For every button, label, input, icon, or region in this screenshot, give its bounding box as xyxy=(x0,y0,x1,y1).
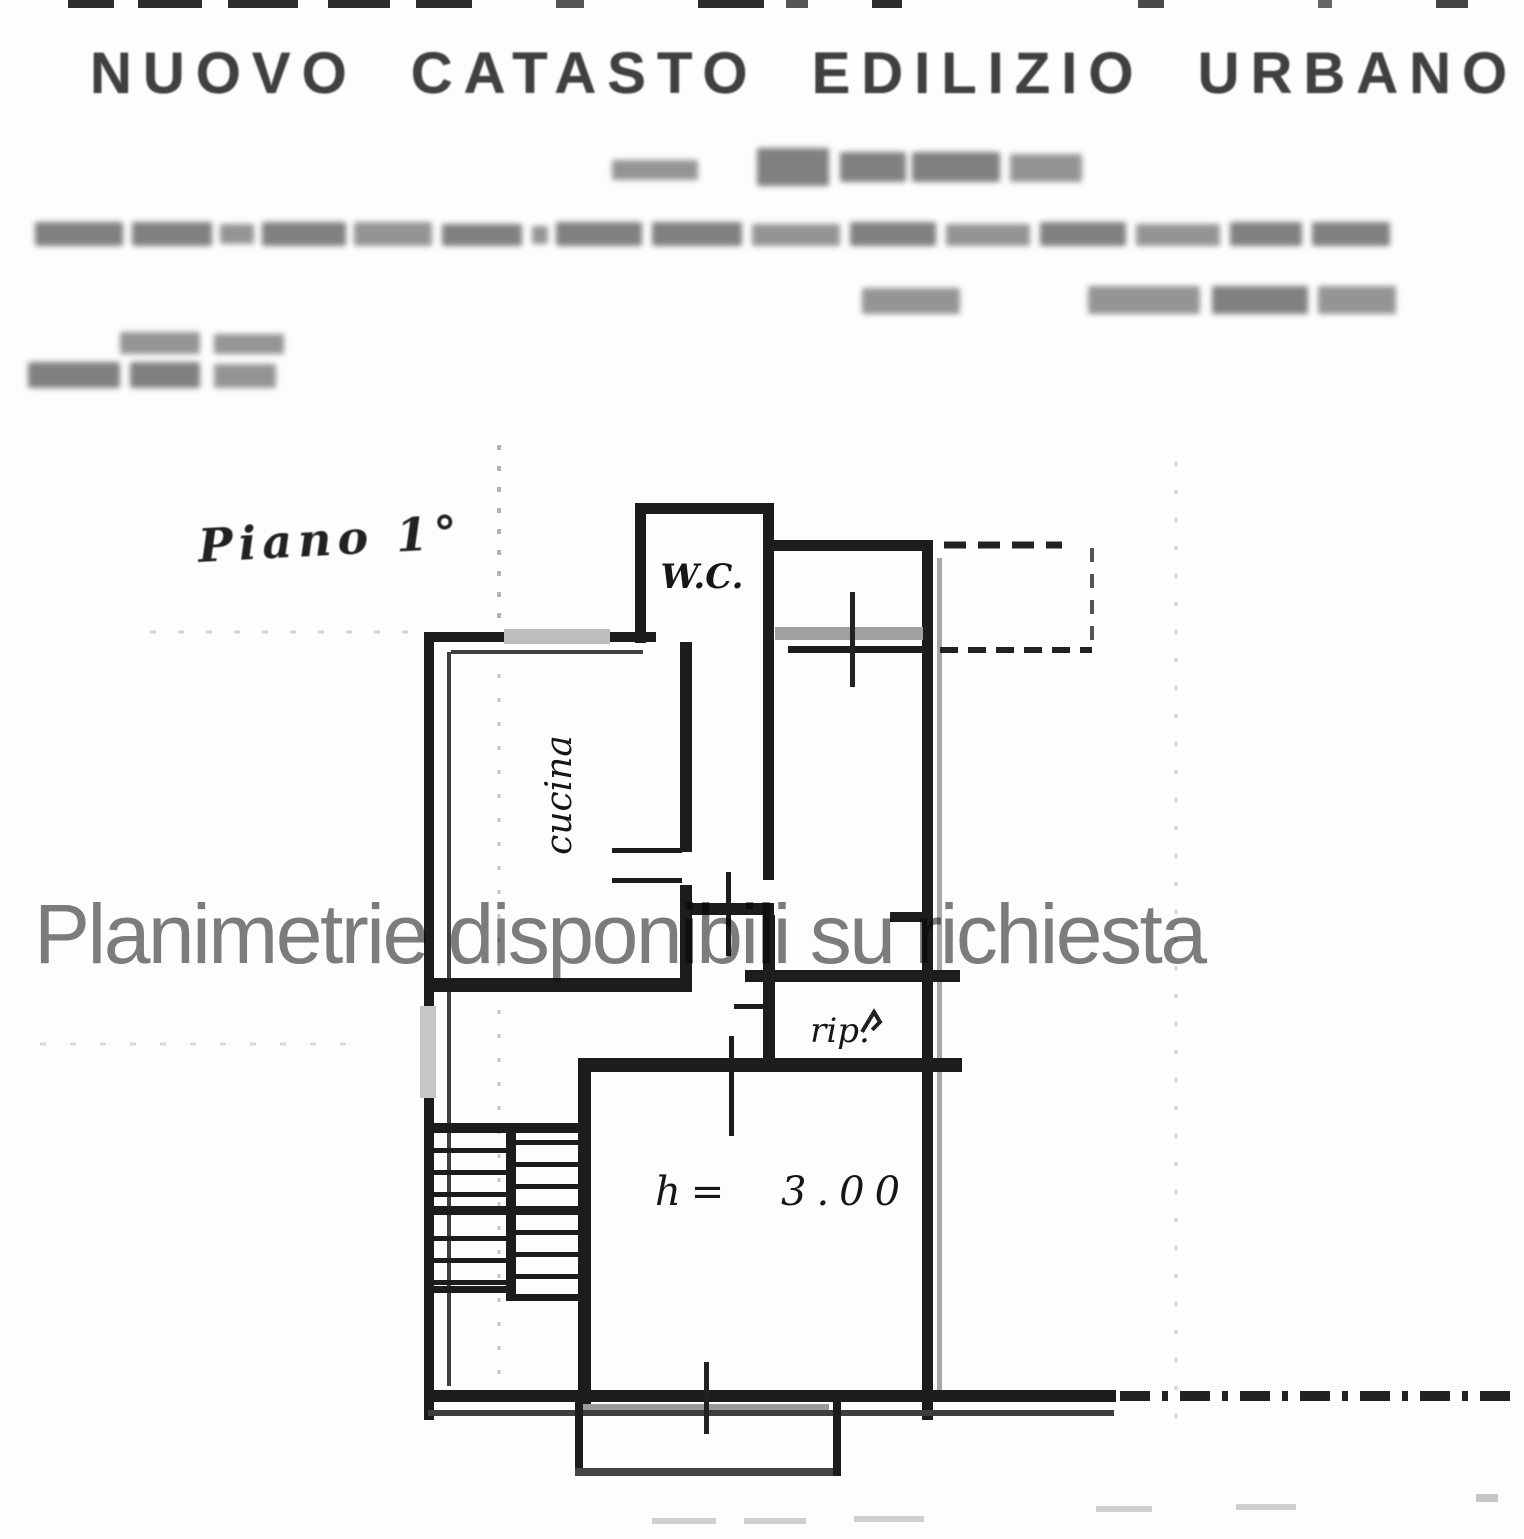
floor-plan: W.C. cucina rip. h= 3.00 xyxy=(0,0,1524,1539)
room-label-kitchen: cucina xyxy=(539,735,580,855)
room-label-storage: rip. xyxy=(810,1011,870,1051)
room-label-wc: W.C. xyxy=(660,557,743,597)
scan-artifact-bottom xyxy=(652,1494,1498,1524)
balcony-top-right xyxy=(940,545,1092,650)
room-label-height: h= 3.00 xyxy=(655,1169,910,1215)
stairs xyxy=(430,1123,588,1301)
watermark: Planimetrie disponibili su richiesta xyxy=(34,886,1524,983)
